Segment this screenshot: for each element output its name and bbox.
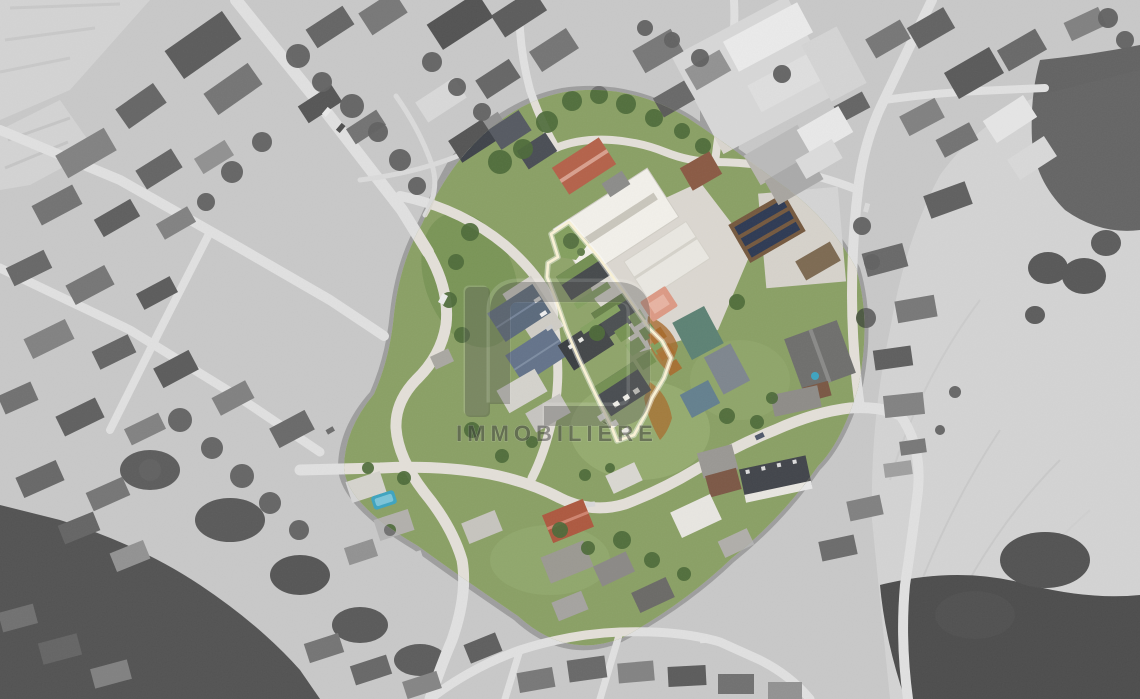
aerial-photo-canvas: IMMOBILIÈRE (0, 0, 1140, 699)
photo-grain (0, 0, 1140, 699)
aerial-photo: IMMOBILIÈRE (0, 0, 1140, 699)
watermark-text: IMMOBILIÈRE (456, 421, 658, 446)
